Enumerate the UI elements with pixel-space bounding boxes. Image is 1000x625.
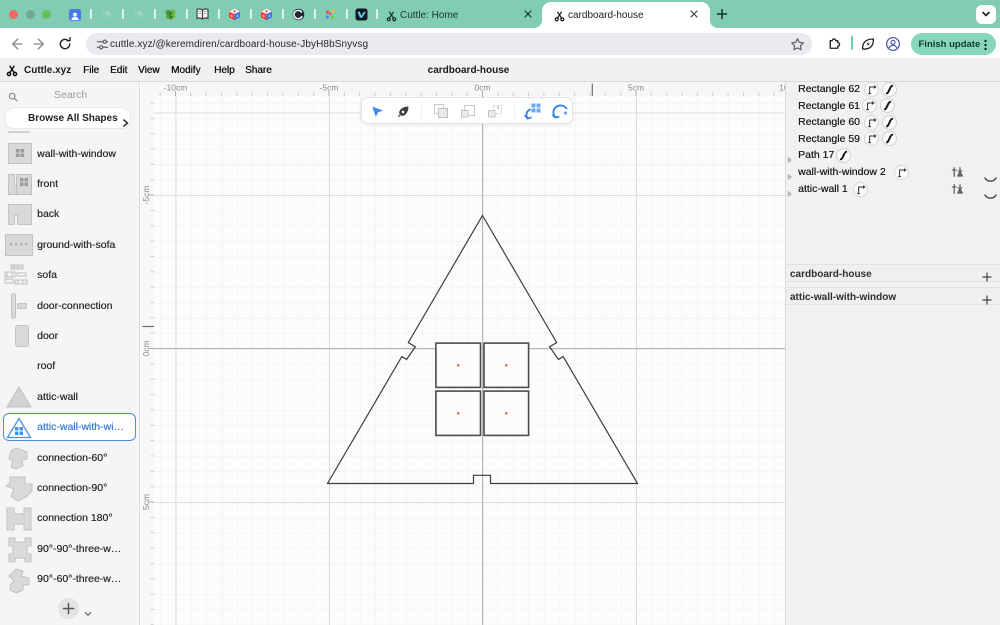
svg-text:0cm: 0cm <box>141 340 151 356</box>
svg-text:-5cm: -5cm <box>141 186 151 205</box>
svg-text:-5cm: -5cm <box>320 83 339 93</box>
svg-text:0cm: 0cm <box>474 83 490 93</box>
svg-text:5cm: 5cm <box>628 83 644 93</box>
svg-text:-10cm: -10cm <box>164 83 188 93</box>
svg-text:5cm: 5cm <box>141 494 151 510</box>
